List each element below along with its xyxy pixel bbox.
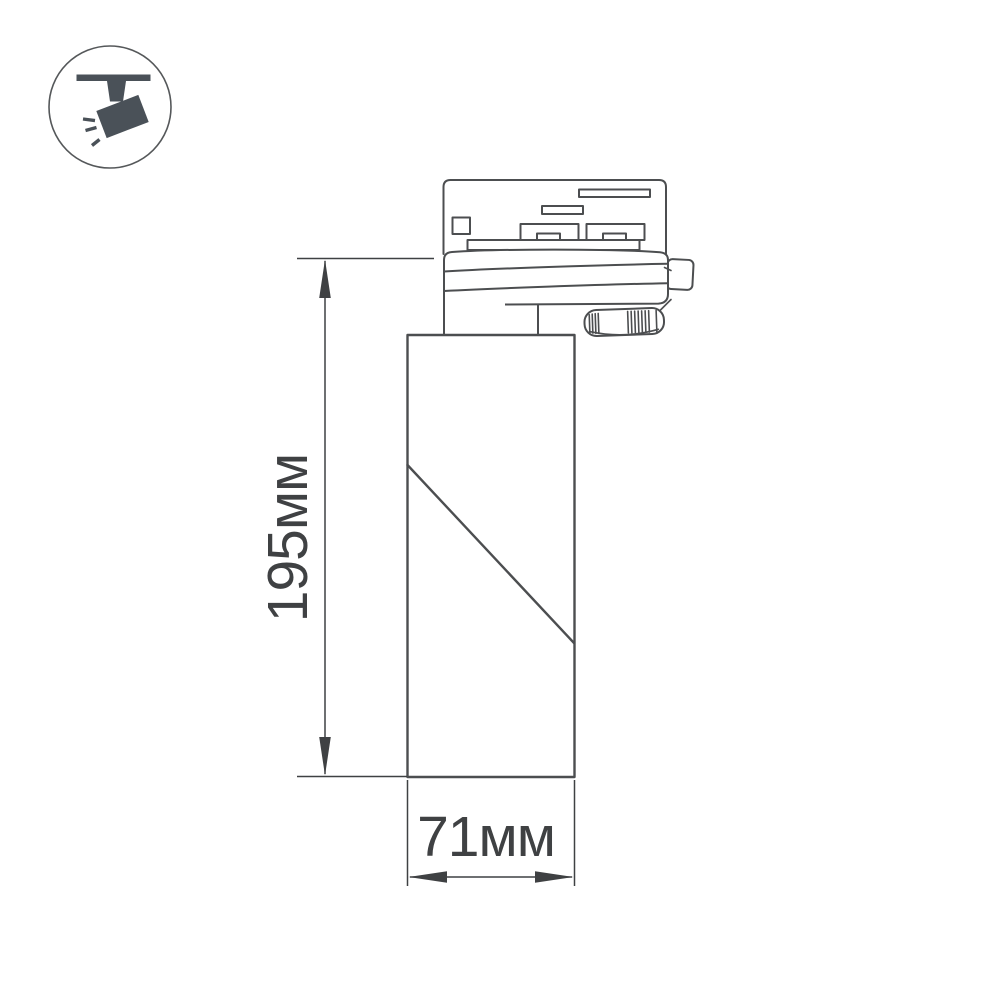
- contact-slot: [579, 190, 650, 198]
- arrow-down-icon: [319, 737, 331, 776]
- contact-bracket-right: [587, 224, 645, 240]
- arrow-up-icon: [319, 260, 331, 299]
- track-adapter: [444, 180, 694, 336]
- adapter-contact-card: [444, 180, 667, 254]
- product-type-badge: [49, 46, 171, 168]
- fixture-drawing: 195мм 71мм: [0, 0, 1000, 1000]
- arrow-left-icon: [409, 871, 448, 882]
- ground-contact: [453, 218, 471, 235]
- track-bar-icon-part: [77, 75, 151, 82]
- height-dimension-label: 195мм: [256, 454, 320, 622]
- adjustment-knob: [584, 308, 664, 337]
- contact-bracket-left: [521, 224, 579, 240]
- width-dimension: 71мм: [408, 780, 575, 886]
- lamp-body: [408, 335, 575, 777]
- stem-icon-part: [107, 81, 126, 102]
- contact-slot-small: [542, 206, 583, 214]
- width-dimension-label: 71мм: [417, 805, 555, 869]
- contact-rail-bar: [468, 240, 640, 250]
- dimension-diagram: 195мм 71мм: [0, 0, 1000, 1000]
- knob-edge-line: [656, 310, 657, 331]
- locking-tab: [666, 259, 694, 290]
- arrow-right-icon: [535, 871, 574, 882]
